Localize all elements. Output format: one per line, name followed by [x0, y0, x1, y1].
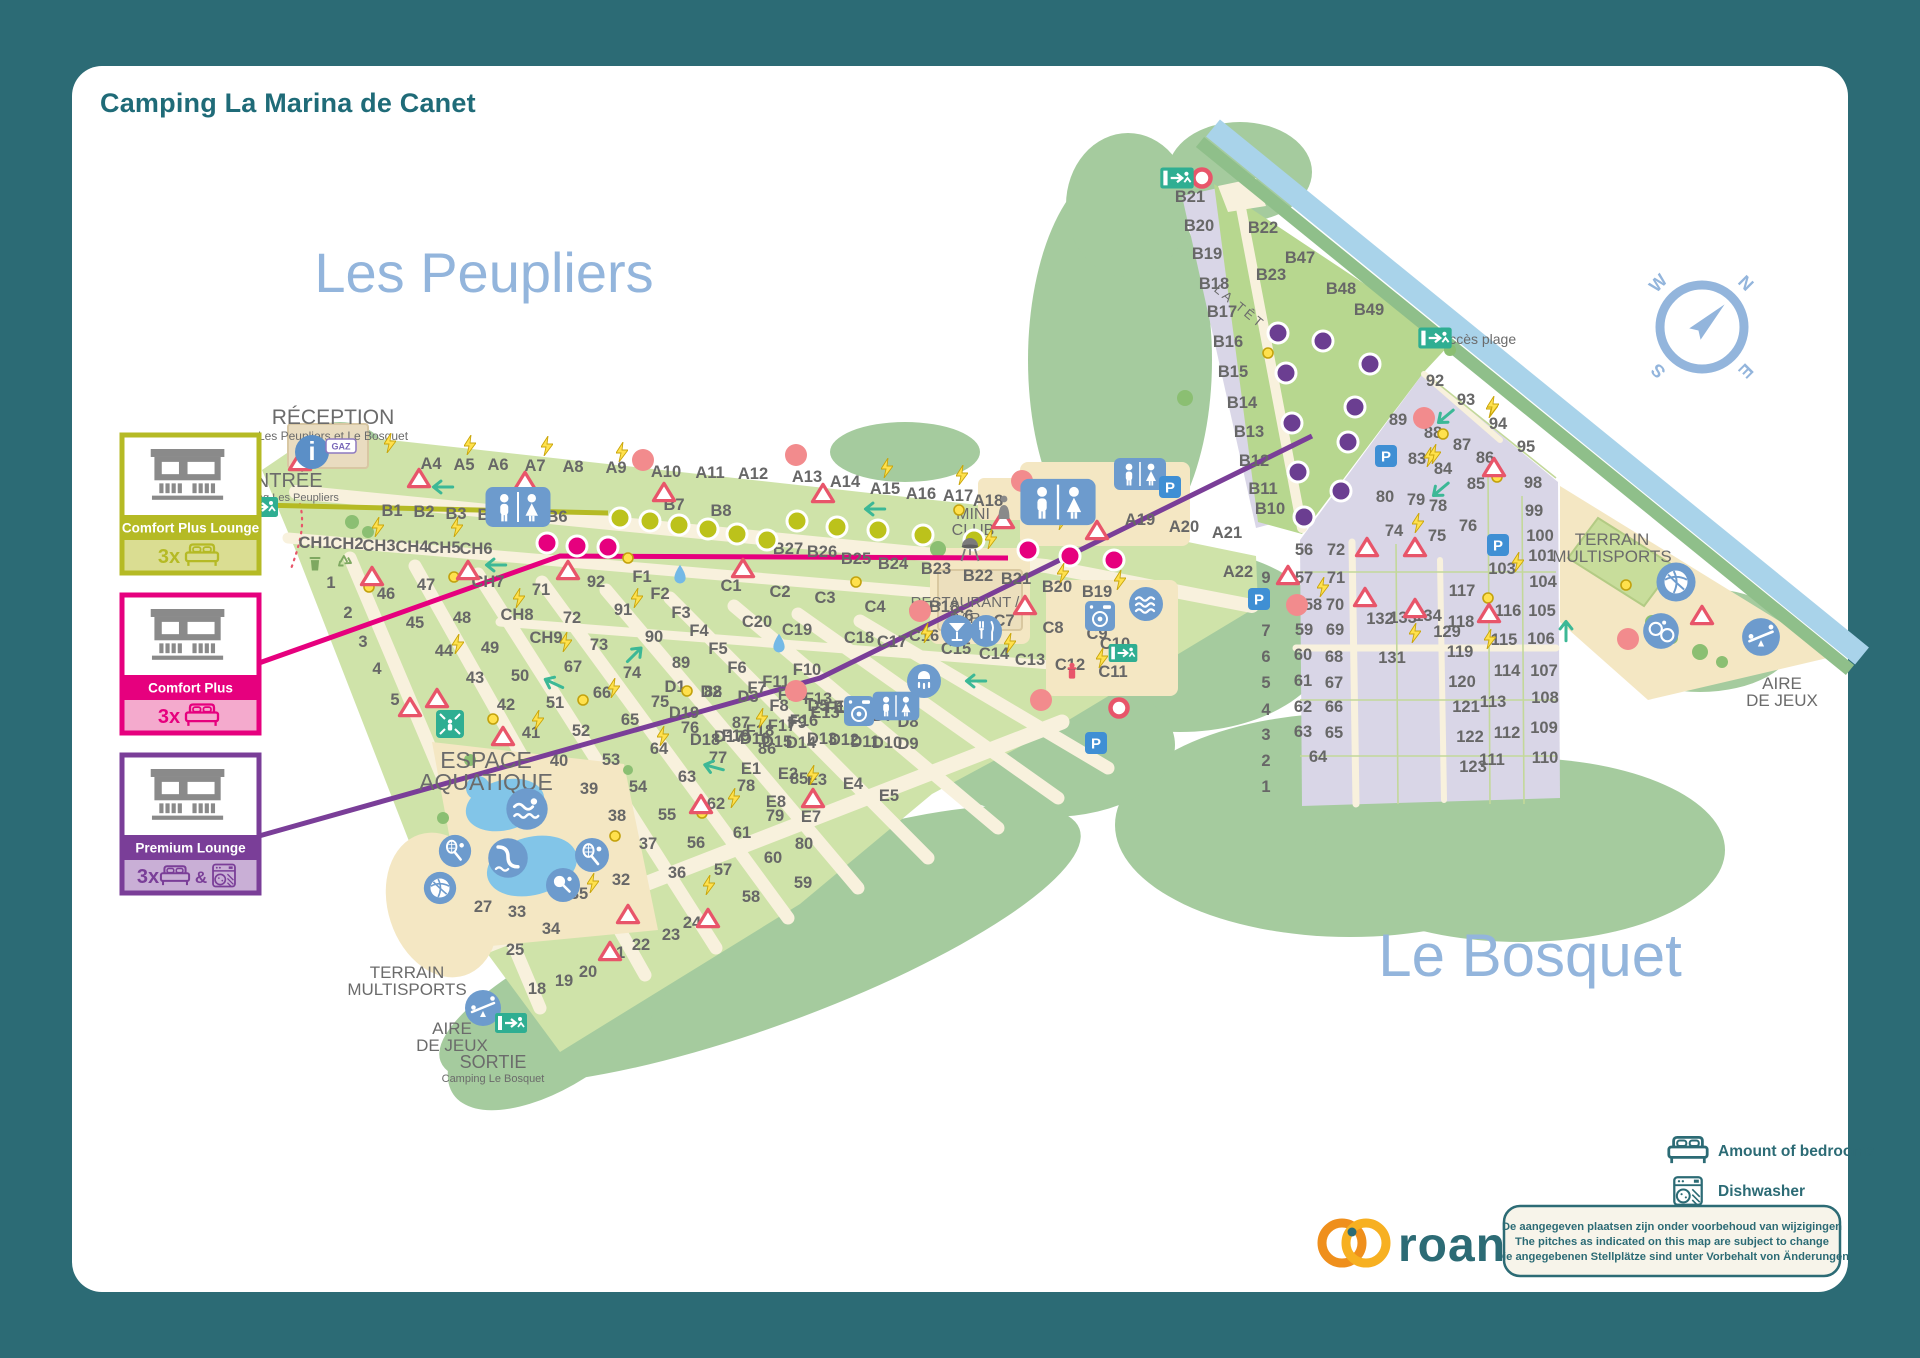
pitch-label: 129 [1433, 623, 1461, 641]
pitch-label: 56 [687, 834, 705, 852]
pitch-label: 114 [1494, 662, 1521, 680]
parking-icon: P [1159, 476, 1181, 498]
pitch-label: 89 [1389, 411, 1407, 429]
map-shape: P [1493, 538, 1503, 555]
bed-icon [1669, 1137, 1707, 1163]
map-shape [345, 515, 359, 529]
pool-icon [1129, 587, 1163, 621]
map-shape: P [1165, 480, 1175, 497]
comfort-plus-lounge-marker [757, 530, 777, 550]
tennis-icon [439, 835, 471, 867]
pitch-label: 98 [1524, 474, 1542, 492]
pitch-label: 59 [1295, 621, 1313, 639]
utility-point-marker [488, 714, 498, 724]
bar-icon [941, 615, 973, 647]
key-label: Amount of bedrooms [1718, 1143, 1875, 1160]
map-shape [623, 765, 633, 775]
pitch-label: 5 [1261, 674, 1270, 692]
legend-box-label: Premium Lounge [135, 841, 246, 856]
disclaimer-line: The pitches as indicated on this map are… [1515, 1236, 1829, 1248]
swimmer-icon [506, 788, 547, 829]
legend-box-label: Comfort Plus Lounge [122, 521, 260, 536]
pitch-label: F1 [632, 568, 651, 586]
gaz-station-icon: GAZ [326, 439, 356, 453]
pitch-label: A15 [870, 480, 900, 498]
pitch-label: 69 [1326, 621, 1344, 639]
pitch-label: A12 [738, 465, 768, 483]
pitch-label: 9 [1261, 569, 1270, 587]
landmark-label: SORTIE [460, 1052, 527, 1072]
pitch-label: B15 [1218, 363, 1248, 381]
pitch-label: 57 [714, 861, 732, 879]
pitch-label: A21 [1212, 524, 1242, 542]
roan-logo: roan [1322, 1219, 1506, 1272]
pitch-label: 91 [614, 601, 632, 619]
pitch-label: 64 [1309, 748, 1328, 766]
pitch-label: 104 [1529, 573, 1557, 591]
utility-point-marker [1263, 348, 1273, 358]
pitch-label: 99 [1525, 502, 1543, 520]
pitch-label: 67 [564, 658, 582, 676]
pitch-label: C11 [1098, 663, 1127, 681]
comfort-plus-lounge-marker [698, 519, 718, 539]
pitch-label: 2 [343, 604, 352, 622]
pitch-label: B49 [1354, 301, 1384, 319]
comfort-plus-lounge-marker [727, 524, 747, 544]
pitch-label: 33 [508, 903, 526, 921]
comfort-plus-marker [1104, 550, 1124, 570]
compass-icon: NESW [1645, 270, 1757, 382]
pitch-label: B2 [413, 503, 434, 521]
premium-lounge-marker [1276, 363, 1296, 383]
pitch-label: 32 [612, 871, 630, 889]
direction-arrow-icon [1560, 621, 1572, 640]
pitch-label: 1 [326, 574, 335, 592]
pitch-label: 115 [1491, 631, 1518, 649]
landmark-label: DE JEUX [1746, 691, 1818, 710]
map-shape [437, 812, 449, 824]
pitch-label: B1 [381, 502, 402, 520]
pitch-label: 75 [1428, 527, 1446, 545]
pitch-label: 40 [550, 752, 568, 770]
pitch-label: A19 [1125, 511, 1155, 529]
pitch-label: A8 [562, 458, 583, 476]
pitch-label: 68 [1325, 648, 1343, 666]
playground-icon [1742, 618, 1780, 656]
pitch-label: 109 [1530, 719, 1558, 737]
poi-ring-marker [1111, 700, 1128, 717]
pitch-label: 60 [1294, 646, 1312, 664]
utility-point-marker [623, 553, 633, 563]
toilets-icon [873, 692, 920, 721]
poi-red-marker [1617, 628, 1639, 650]
pitch-label: 72 [563, 609, 581, 627]
utility-point-marker [1438, 429, 1448, 439]
pitch-label: 74 [623, 664, 642, 682]
pitch-label: 77 [709, 749, 727, 767]
comfort-plus-lounge-marker [868, 520, 888, 540]
pitch-label: B21 [1001, 570, 1031, 588]
map-shape [930, 541, 946, 557]
pitch-label: 95 [1517, 438, 1535, 456]
pitch-label: 94 [1489, 415, 1508, 433]
pitch-label: A14 [830, 473, 861, 491]
pitch-label: B10 [1255, 500, 1285, 518]
pitch-label: 20 [579, 963, 597, 981]
pitch-label: 76 [681, 719, 699, 737]
pitch-label: 72 [1327, 541, 1345, 559]
pitch-label: 71 [532, 581, 550, 599]
pitch-label: A22 [1223, 563, 1253, 581]
parking-icon: P [1248, 588, 1270, 610]
map-shape: & [195, 868, 207, 887]
map-shape [1689, 299, 1730, 340]
waterslide-icon [488, 838, 528, 878]
volleyball-icon [1656, 562, 1695, 601]
pitch-label: 121 [1452, 698, 1480, 716]
pitch-label: 50 [511, 667, 529, 685]
map-shape: NESW [1645, 270, 1757, 382]
disclaimer-box: De aangegeven plaatsen zijn onder voorbe… [1495, 1206, 1849, 1276]
pitch-label: 65 [621, 711, 639, 729]
pitch-label: B20 [1042, 578, 1072, 596]
washing-machine-icon [844, 696, 874, 726]
utility-point-marker [682, 686, 692, 696]
pitch-label: CH4 [395, 538, 429, 556]
pitch-label: CH8 [500, 606, 533, 624]
poi-red-marker [1413, 407, 1435, 429]
pitch-label: A17 [943, 487, 973, 505]
pitch-label: E5 [879, 787, 899, 805]
pitch-label: 5 [390, 691, 399, 709]
parking-icon: P [1375, 445, 1397, 467]
landmark-label: Camping Le Bosquet [442, 1073, 545, 1085]
pitch-label: 4 [1261, 701, 1271, 719]
campsite-map-page: Camping La Marina de Canet [0, 0, 1920, 1358]
pitch-label: C19 [782, 621, 812, 639]
premium-lounge-marker [1282, 413, 1302, 433]
pitch-label: CH9 [529, 629, 562, 647]
utility-point-marker [954, 505, 964, 515]
pitch-label: CH5 [427, 539, 460, 557]
comfort-plus-marker [537, 533, 557, 553]
pitch-label: B20 [1184, 217, 1214, 235]
pitch-label: 110 [1532, 749, 1559, 767]
pitch-label: 103 [1488, 560, 1516, 578]
pitch-label: E1 [741, 760, 761, 778]
pitch-label: 60 [764, 849, 782, 867]
restaurant-icon [970, 615, 1002, 647]
pitch-label: 106 [1527, 630, 1555, 648]
pitch-label: 2 [1261, 752, 1270, 770]
pitch-label: 64 [650, 740, 669, 758]
map-shape [1692, 644, 1708, 660]
premium-lounge-marker [1288, 462, 1308, 482]
pitch-label: A20 [1169, 518, 1199, 536]
pitch-label: 23 [662, 926, 680, 944]
pitch-label: B11 [1248, 480, 1277, 498]
comfort-plus-lounge-marker [827, 517, 847, 537]
legend-box-label: Comfort Plus [148, 681, 233, 696]
exit-icon [1109, 644, 1138, 662]
pitch-label: F2 [650, 585, 669, 603]
pitch-label: C17 [877, 633, 907, 651]
comfort-plus-lounge-marker [640, 511, 660, 531]
pitch-label: 43 [466, 669, 484, 687]
pitch-label: 54 [629, 778, 648, 796]
pitch-label: 67 [1325, 674, 1343, 692]
pitch-label: C2 [769, 583, 790, 601]
pitch-label: B25 [841, 550, 871, 568]
pitch-label: 18 [528, 980, 546, 998]
pitch-label: 66 [593, 684, 611, 702]
pitch-label: 108 [1531, 689, 1559, 707]
pitch-label: B16 [1213, 333, 1243, 351]
premium-lounge-marker [1268, 323, 1288, 343]
pitch-label: A9 [605, 459, 626, 477]
pitch-label: 1 [1261, 778, 1270, 796]
pitch-label: B26 [807, 543, 837, 561]
assembly-point-icon [436, 710, 464, 738]
pitch-label: 66 [1325, 698, 1343, 716]
pitch-label: 65 [1325, 724, 1343, 742]
pitch-label: C20 [742, 613, 772, 631]
pitch-label: 36 [668, 864, 686, 882]
pitch-label: 105 [1528, 602, 1556, 620]
exit-icon [1160, 168, 1194, 189]
pitch-label: 47 [417, 576, 435, 594]
pitch-label: CH1 [298, 534, 331, 552]
pitch-label: A7 [524, 457, 545, 475]
pitch-label: C4 [864, 598, 886, 616]
pitch-label: 48 [453, 609, 471, 627]
toilets-icon [1114, 458, 1166, 490]
pitch-label: 45 [406, 614, 424, 632]
comfort-plus-lounge-marker [787, 511, 807, 531]
utility-point-marker [1621, 580, 1631, 590]
pitch-label: B12 [1239, 452, 1269, 470]
pitch-label: 120 [1448, 673, 1476, 691]
comfort-plus-marker [598, 537, 618, 557]
pitch-label: 100 [1526, 527, 1554, 545]
pitch-label: C18 [844, 629, 874, 647]
pitch-label: 61 [1294, 672, 1312, 690]
pitch-label: B22 [1248, 219, 1278, 237]
pitch-label: 92 [1426, 372, 1444, 390]
pitch-label: 78 [737, 777, 755, 795]
pitch-label: 119 [1447, 643, 1474, 661]
pitch-label: 27 [474, 898, 492, 916]
brand-name: roan [1398, 1219, 1506, 1272]
pitch-label: 89 [672, 654, 690, 672]
map-shape: P [1254, 592, 1264, 609]
map-shape [1716, 656, 1728, 668]
pitch-label: 19 [555, 972, 573, 990]
pitch-label: 59 [794, 874, 812, 892]
poi-red-marker [785, 680, 807, 702]
landmark-label: RÉCEPTION [272, 406, 395, 429]
pitch-label: C3 [814, 589, 835, 607]
pitch-label: CH6 [459, 540, 492, 558]
pitch-label: C13 [1015, 651, 1045, 669]
pitch-label: 61 [733, 824, 751, 842]
legend-box: Comfort Plus3x [122, 595, 259, 733]
pitch-label: F5 [708, 640, 727, 658]
utility-point-marker [851, 577, 861, 587]
pitch-label: 52 [572, 722, 590, 740]
pitch-label: B21 [1175, 188, 1205, 206]
disclaimer-line: De aangegeven plaatsen zijn onder voorbe… [1502, 1221, 1842, 1233]
compass-letter: N [1734, 271, 1757, 294]
landmark-label: MULTISPORTS [347, 980, 466, 999]
pitch-label: 92 [587, 573, 605, 591]
compass-letter: S [1647, 360, 1670, 383]
poi-red-marker [785, 444, 807, 466]
pitch-label: 112 [1494, 724, 1521, 742]
comfort-plus-marker [1060, 546, 1080, 566]
pitch-label: 87 [732, 714, 750, 732]
pitch-label: 107 [1530, 662, 1558, 680]
pitch-label: 53 [602, 751, 620, 769]
pitch-label: B24 [878, 555, 909, 573]
dishwasher-icon [1674, 1177, 1701, 1205]
parking-icon: P [1487, 534, 1509, 556]
utility-point-marker [610, 831, 620, 841]
toilets-icon [1020, 479, 1095, 525]
comfort-plus-marker [567, 536, 587, 556]
legend-box: Premium Lounge3x& [122, 755, 259, 893]
compass-letter: W [1645, 270, 1671, 296]
campsite-map: A4A5A6A7A8A9A10A11A12A13A14A15A16A17A18A… [0, 0, 1920, 1358]
pitch-label: A16 [906, 485, 936, 503]
poi-red-marker [909, 600, 931, 622]
pitch-label: 42 [497, 696, 515, 714]
map-shape: 3x [158, 706, 180, 728]
pitch-label: F10 [793, 661, 821, 679]
poi-ring-marker [1194, 170, 1211, 187]
premium-lounge-marker [1294, 507, 1314, 527]
shower-icon [907, 664, 941, 698]
pitch-label: F3 [671, 604, 690, 622]
washing-machine-icon [1085, 601, 1115, 631]
poi-red-marker [632, 449, 654, 471]
map-shape [1352, 542, 1356, 804]
poi-red-marker [1030, 689, 1052, 711]
pitch-label: B23 [1256, 266, 1286, 284]
map-shape: 3x [158, 546, 180, 568]
compass-letter: E [1735, 360, 1758, 383]
premium-lounge-marker [1313, 331, 1333, 351]
poi-red-marker [1286, 594, 1308, 616]
pitch-label: 93 [1457, 391, 1475, 409]
pitch-label: A11 [695, 464, 724, 482]
pitch-label: 74 [1385, 522, 1404, 540]
tennis-icon [575, 838, 609, 872]
pitch-label: 86 [758, 740, 776, 758]
pitch-label: 34 [542, 920, 561, 938]
map-shape [1177, 390, 1193, 406]
pitch-label: 58 [742, 888, 760, 906]
map-shape: i [308, 436, 315, 466]
pitch-label: B48 [1326, 280, 1356, 298]
map-shape: GAZ [332, 442, 352, 452]
pitch-label: 37 [639, 835, 657, 853]
pitch-label: 80 [795, 835, 813, 853]
pitch-label: B13 [1234, 423, 1264, 441]
pitch-label: B47 [1285, 249, 1315, 267]
information-icon: i [295, 435, 329, 469]
key-label: Dishwasher [1718, 1183, 1805, 1200]
pitch-label: E4 [843, 775, 864, 793]
pitch-label: 73 [590, 636, 608, 654]
map-shape [1440, 560, 1444, 800]
map-shape: Amount of bedroomsDishwasherDe aangegeve… [1322, 1137, 1875, 1276]
pitch-label: 6 [1261, 648, 1270, 666]
map-shape: P [1381, 449, 1391, 466]
pitch-label: 55 [658, 806, 676, 824]
pitch-label: 84 [1434, 460, 1453, 478]
pitch-label: B8 [710, 502, 731, 520]
pitch-label: 22 [632, 936, 650, 954]
comfort-plus-lounge-marker [913, 525, 933, 545]
pitch-label: 4 [372, 660, 382, 678]
volleyball-icon [424, 872, 456, 904]
pitch-label: CH2 [330, 535, 363, 553]
pitch-label: 44 [435, 642, 454, 660]
pitch-label: 113 [1480, 693, 1507, 711]
pitch-label: 63 [678, 768, 696, 786]
pitch-label: B19 [1192, 245, 1222, 263]
disclaimer-line: Die angegebenen Stellplätze sind unter V… [1495, 1250, 1849, 1263]
pitch-label: 71 [1327, 569, 1345, 587]
pitch-label: 79 [1407, 491, 1425, 509]
pitch-label: 80 [1376, 488, 1394, 506]
pitch-label: 123 [1459, 758, 1487, 776]
premium-lounge-marker [1338, 432, 1358, 452]
comfort-plus-lounge-marker [669, 515, 689, 535]
section-title: Les Peupliers [314, 241, 653, 304]
pitch-label: 122 [1456, 728, 1484, 746]
pitch-label: 38 [608, 807, 626, 825]
pitch-label: C14 [979, 645, 1010, 663]
pitch-label: 49 [481, 639, 499, 657]
petanque-icon [1643, 613, 1679, 649]
pitch-label: A4 [420, 455, 442, 473]
pitch-label: CH3 [362, 537, 395, 555]
pitch-label: 83 [1408, 450, 1426, 468]
pitch-label: F6 [727, 659, 746, 677]
pitch-label: A10 [651, 463, 681, 481]
map-shape [1348, 1228, 1357, 1237]
pitch-label: C8 [1042, 619, 1063, 637]
pitch-label: 63 [1294, 723, 1312, 741]
landmark-label: MULTISPORTS [1552, 547, 1671, 566]
parking-icon: P [1085, 732, 1107, 754]
map-shape [1066, 133, 1190, 277]
premium-lounge-marker [1345, 397, 1365, 417]
utility-point-marker [578, 695, 588, 705]
map-shape: Comfort Plus Lounge3xComfort Plus3xPremi… [122, 435, 260, 893]
pitch-label: 78 [1429, 497, 1447, 515]
exit-icon [495, 1013, 527, 1033]
pitch-label: 88 [704, 683, 722, 701]
pitch-label: B19 [1082, 583, 1112, 601]
pitch-label: 131 [1378, 649, 1406, 667]
section-title: Le Bosquet [1378, 922, 1682, 989]
legend-box: Comfort Plus Lounge3x [122, 435, 260, 573]
pitch-label: E7 [801, 808, 821, 826]
pitch-label: 76 [1459, 517, 1477, 535]
